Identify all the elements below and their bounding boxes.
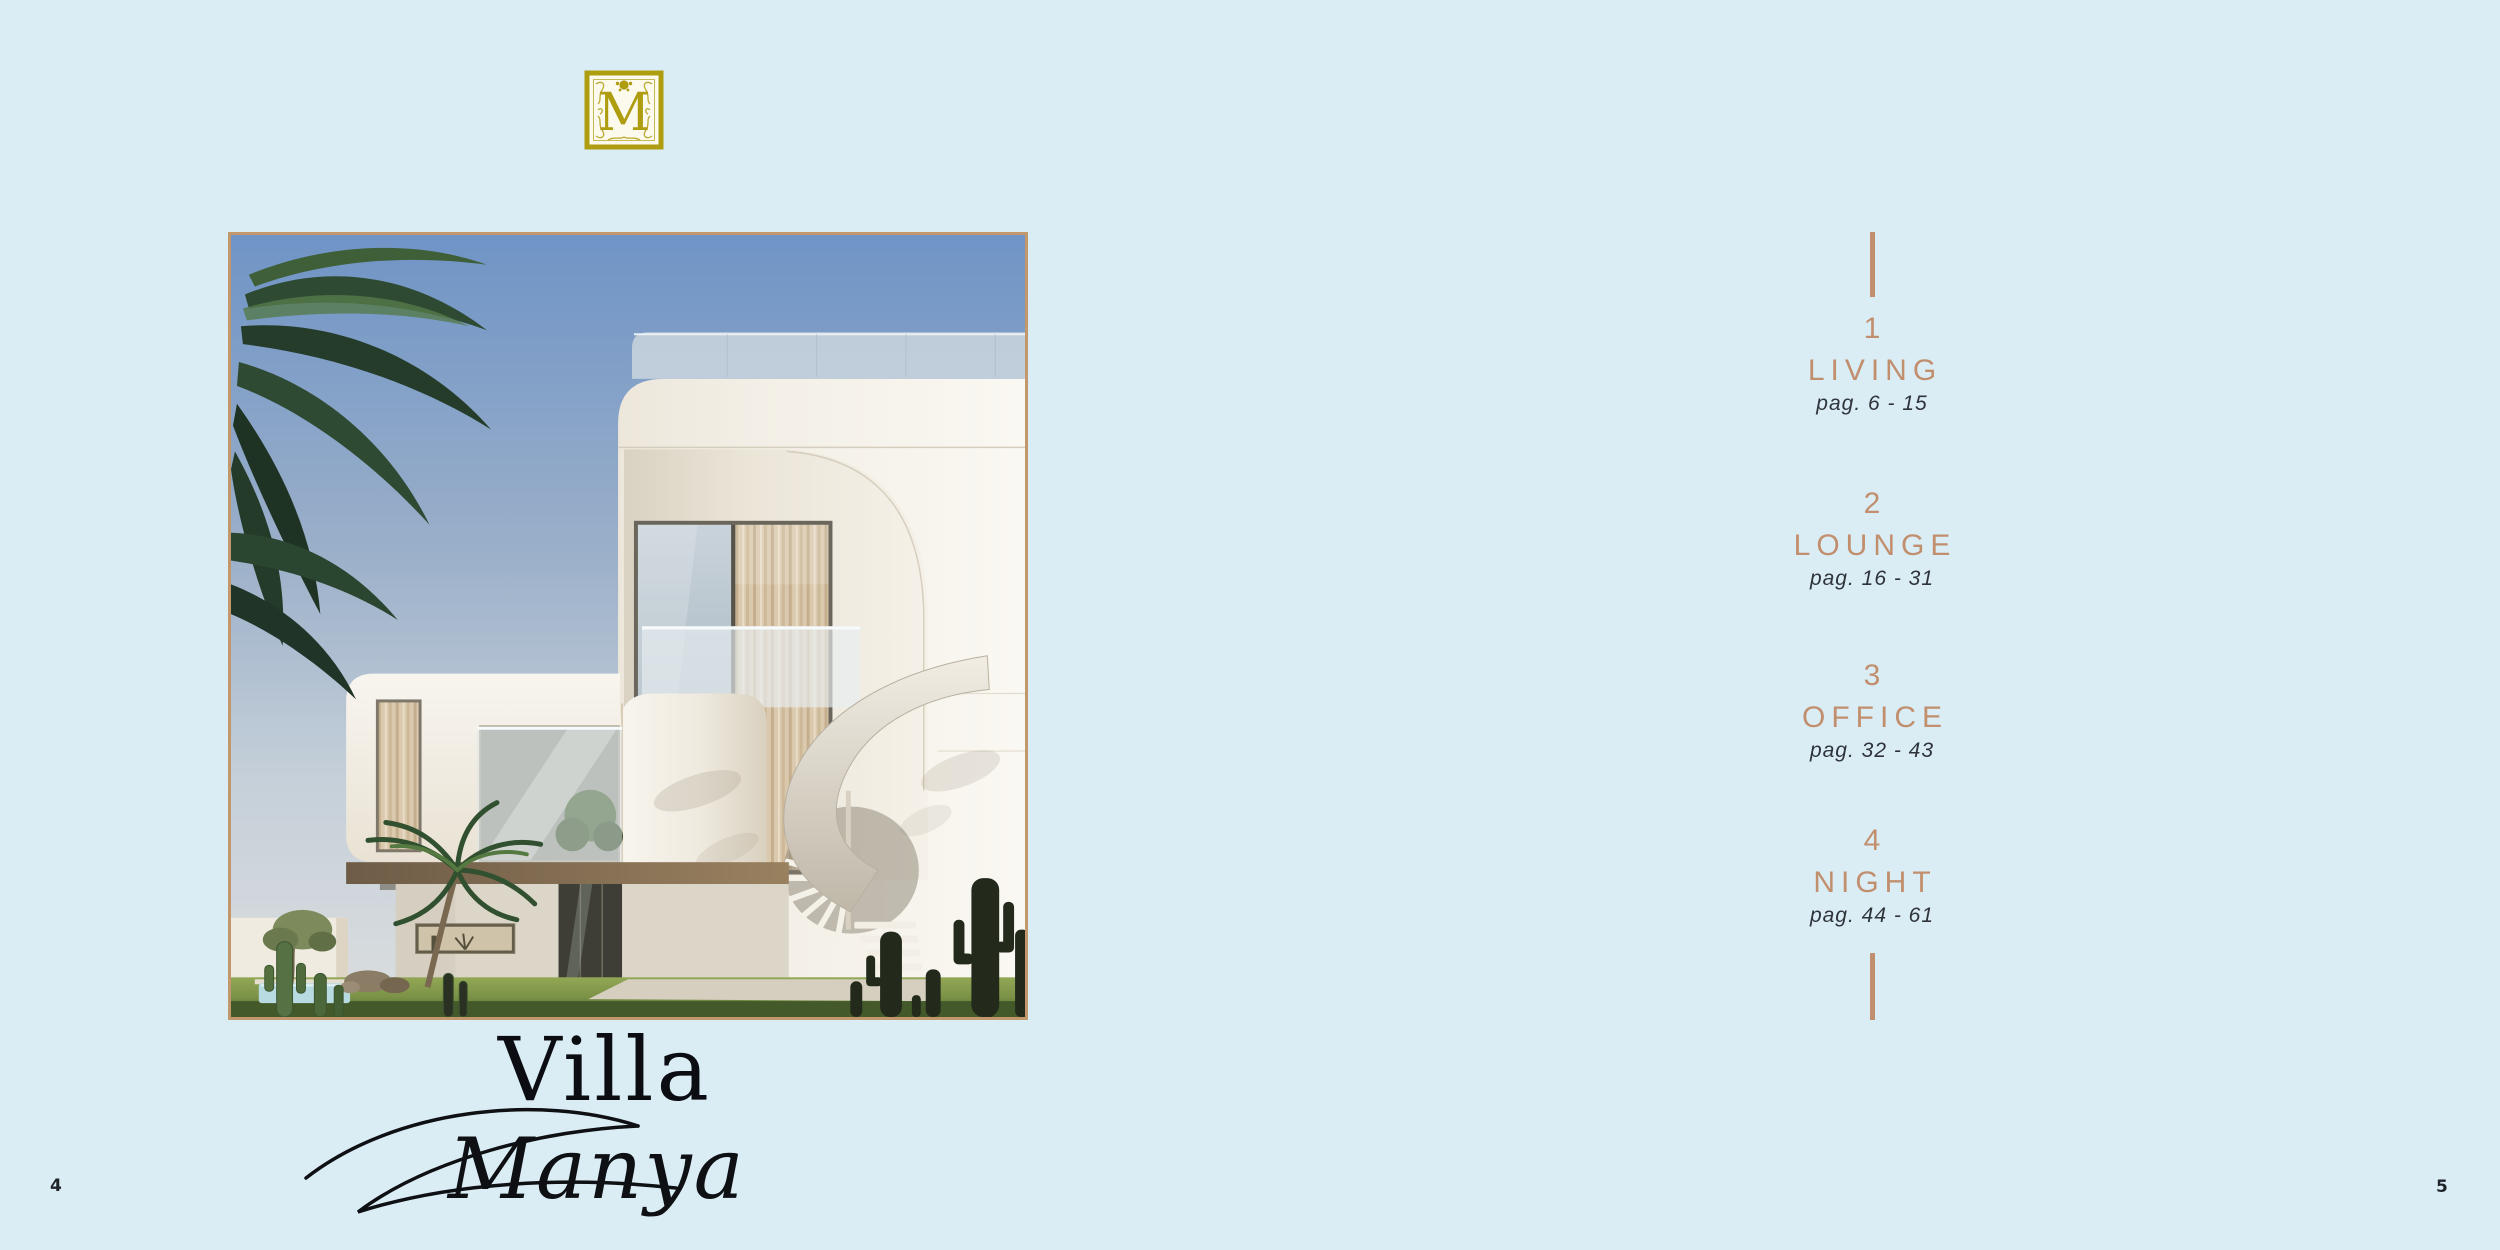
right-page-number: 5 (2436, 1177, 2448, 1197)
toc-item-office[interactable]: 3 OFFICE pag. 32 - 43 (1672, 659, 2072, 764)
toc-item-number: 3 (1672, 659, 2072, 693)
toc-item-number: 4 (1672, 824, 2072, 858)
left-page-number: 4 (50, 1176, 62, 1196)
brochure-spread: M (0, 0, 2500, 1250)
toc-item-title: OFFICE (1672, 698, 2072, 738)
toc-item-living[interactable]: 1 LIVING pag. 6 - 15 (1672, 312, 2072, 417)
monogram-icon: M (584, 70, 664, 150)
villa-name-script: Manya (296, 1086, 836, 1242)
toc-bottom-rule (1870, 953, 1875, 1020)
toc-item-title: LOUNGE (1672, 526, 2072, 566)
villa-left-wing (346, 674, 623, 863)
brand-monogram-logo: M (584, 70, 664, 150)
monogram-letter: M (597, 83, 650, 143)
toc-item-pages: pag. 6 - 15 (1672, 391, 2072, 417)
villa-name-text: Manya (446, 1120, 746, 1218)
toc-top-rule (1870, 232, 1875, 297)
villa-photo (231, 235, 1025, 1017)
toc-item-number: 1 (1672, 312, 2072, 346)
toc-item-pages: pag. 32 - 43 (1672, 738, 2072, 764)
toc-item-title: NIGHT (1672, 863, 2072, 903)
villa-photo-frame (228, 232, 1028, 1020)
toc-item-pages: pag. 44 - 61 (1672, 903, 2072, 929)
toc-item-pages: pag. 16 - 31 (1672, 566, 2072, 592)
toc-item-lounge[interactable]: 2 LOUNGE pag. 16 - 31 (1672, 487, 2072, 592)
toc-item-title: LIVING (1672, 351, 2072, 391)
toc-item-night[interactable]: 4 NIGHT pag. 44 - 61 (1672, 824, 2072, 929)
toc-item-number: 2 (1672, 487, 2072, 521)
